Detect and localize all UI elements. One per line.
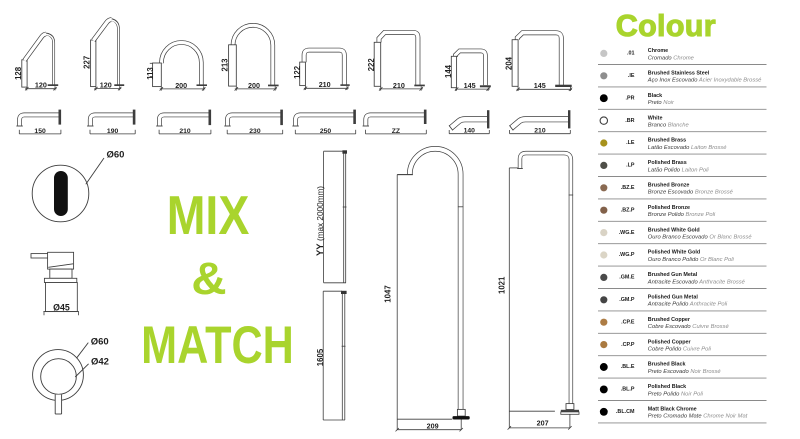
svg-text:Ø60: Ø60 — [91, 336, 109, 347]
svg-text:Latão Polido Laiton Poli: Latão Polido Laiton Poli — [648, 167, 710, 173]
svg-text:222: 222 — [367, 58, 376, 72]
svg-text:Brushed Black: Brushed Black — [648, 362, 686, 368]
svg-text:Ø60: Ø60 — [107, 150, 125, 161]
svg-text:Antracite Escovado Anthracite: Antracite Escovado Anthracite Brossé — [647, 279, 746, 285]
svg-text:Polished Bronze: Polished Bronze — [648, 205, 690, 211]
svg-text:213: 213 — [220, 58, 229, 72]
svg-text:.BL.CM: .BL.CM — [616, 409, 635, 415]
svg-text:.GM.P: .GM.P — [619, 297, 635, 303]
svg-text:150: 150 — [34, 128, 46, 135]
svg-text:Latão Escovado Laiton Brossé: Latão Escovado Laiton Brossé — [648, 145, 727, 151]
svg-text:120: 120 — [35, 81, 47, 90]
svg-text:209: 209 — [427, 422, 439, 431]
svg-text:145: 145 — [464, 81, 476, 90]
svg-text:Brushed White Gold: Brushed White Gold — [648, 227, 700, 233]
svg-text:Bronze Polido Bronze Poli: Bronze Polido Bronze Poli — [648, 212, 716, 218]
svg-text:227: 227 — [83, 56, 92, 69]
svg-text:Ø45: Ø45 — [53, 302, 70, 312]
svg-text:.IE: .IE — [628, 73, 635, 79]
svg-text:Preto Cromado Mate Chrome Noir: Preto Cromado Mate Chrome Noir Mat — [648, 414, 748, 420]
svg-text:204: 204 — [505, 56, 514, 70]
svg-text:Polished White Gold: Polished White Gold — [648, 250, 700, 256]
svg-text:Ø42: Ø42 — [91, 357, 109, 368]
svg-text:Matt Black Chrome: Matt Black Chrome — [648, 407, 697, 413]
svg-text:207: 207 — [537, 418, 549, 427]
svg-text:Preto Noir: Preto Noir — [648, 100, 675, 106]
svg-text:1021: 1021 — [498, 276, 507, 294]
svg-text:MATCH: MATCH — [141, 316, 294, 375]
svg-text:Cromado Chrome: Cromado Chrome — [648, 55, 695, 61]
svg-text:.BR: .BR — [625, 118, 634, 124]
svg-text:.BZ.E: .BZ.E — [621, 185, 635, 191]
svg-text:&: & — [191, 253, 226, 304]
svg-text:.CP.E: .CP.E — [621, 319, 635, 325]
svg-text:250: 250 — [320, 128, 332, 135]
svg-text:.GM.E: .GM.E — [619, 275, 635, 281]
svg-text:.LP: .LP — [626, 163, 635, 169]
svg-text:MIX: MIX — [167, 184, 250, 246]
svg-text:210: 210 — [393, 81, 405, 90]
svg-text:Ouro Branco Polido Or Blanc Po: Ouro Branco Polido Or Blanc Poli — [648, 257, 735, 263]
svg-text:ZZ: ZZ — [392, 128, 400, 135]
svg-text:White: White — [648, 115, 663, 121]
svg-text:190: 190 — [107, 128, 119, 135]
svg-text:Preto Escovado Noir Brossé: Preto Escovado Noir Brossé — [648, 369, 722, 375]
svg-text:200: 200 — [248, 81, 260, 90]
svg-text:.BL.P: .BL.P — [621, 387, 635, 393]
svg-text:.CP.P: .CP.P — [621, 342, 635, 348]
svg-text:Brushed Bronze: Brushed Bronze — [648, 183, 690, 189]
svg-text:230: 230 — [249, 128, 261, 135]
svg-text:Antracite Polido Anthracite Po: Antracite Polido Anthracite Poli — [647, 302, 728, 308]
svg-text:Cobre Escovado Cuivre Brossé: Cobre Escovado Cuivre Brossé — [648, 324, 730, 330]
svg-text:210: 210 — [319, 80, 331, 89]
svg-text:Brushed Gun Metal: Brushed Gun Metal — [648, 272, 698, 278]
svg-text:210: 210 — [179, 128, 191, 135]
svg-text:144: 144 — [444, 64, 453, 78]
svg-text:120: 120 — [100, 81, 112, 90]
svg-text:Branco Blanche: Branco Blanche — [648, 123, 690, 129]
svg-text:Polished Black: Polished Black — [648, 384, 686, 390]
svg-text:YY (max 2000mm): YY (max 2000mm) — [314, 186, 325, 256]
svg-text:1605: 1605 — [316, 348, 325, 366]
svg-text:145: 145 — [534, 81, 546, 90]
svg-text:122: 122 — [293, 65, 302, 79]
svg-text:Ouro Branco Escovado Or Blanc: Ouro Branco Escovado Or Blanc Brossé — [648, 235, 753, 241]
svg-text:Cobre Polido Cuivre Poli: Cobre Polido Cuivre Poli — [648, 347, 712, 353]
svg-text:1047: 1047 — [384, 285, 393, 302]
svg-text:210: 210 — [534, 128, 546, 135]
svg-text:Brushed Brass: Brushed Brass — [648, 138, 686, 144]
svg-text:Brushed Copper: Brushed Copper — [648, 317, 691, 323]
svg-text:.WG.P: .WG.P — [619, 252, 635, 258]
svg-text:.WG.E: .WG.E — [619, 230, 635, 236]
svg-text:.BL.E: .BL.E — [621, 364, 635, 370]
svg-text:Preto Polido Noir Poli: Preto Polido Noir Poli — [648, 391, 704, 397]
svg-text:140: 140 — [464, 128, 476, 135]
svg-text:Bronze Escovado Bronze Brossé: Bronze Escovado Bronze Brossé — [648, 190, 734, 196]
svg-text:200: 200 — [175, 81, 187, 90]
svg-text:.01: .01 — [627, 51, 635, 57]
svg-text:Brushed Stainless Steel: Brushed Stainless Steel — [648, 71, 710, 77]
svg-text:.PR: .PR — [626, 95, 635, 101]
svg-text:Polished Gun Metal: Polished Gun Metal — [648, 295, 699, 301]
svg-text:128: 128 — [14, 66, 23, 80]
svg-text:Polished Brass: Polished Brass — [648, 160, 687, 166]
svg-text:Polished Copper: Polished Copper — [648, 339, 692, 345]
svg-text:Black: Black — [648, 93, 662, 99]
svg-text:113: 113 — [146, 67, 155, 80]
svg-text:.LE: .LE — [626, 140, 635, 146]
svg-text:Colour: Colour — [616, 9, 716, 43]
svg-text:.BZ.P: .BZ.P — [621, 207, 635, 213]
svg-text:Aço Inox Escovado Acier Inoxyd: Aço Inox Escovado Acier Inoxydable Bross… — [647, 78, 762, 84]
svg-text:Chrome: Chrome — [648, 48, 668, 54]
